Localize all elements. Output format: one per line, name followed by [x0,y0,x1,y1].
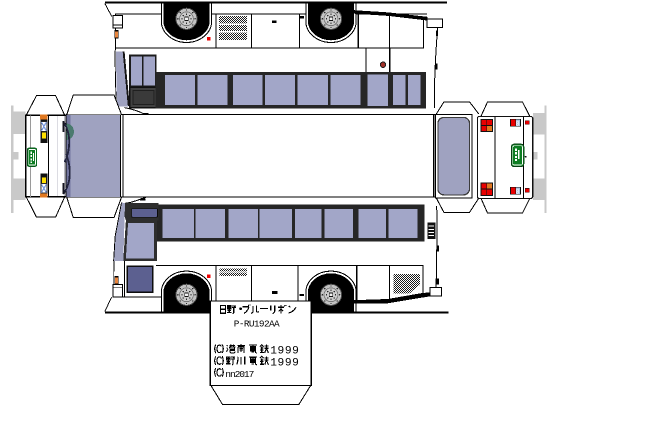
svg-text:1999: 1999 [270,346,299,358]
svg-text:1999: 1999 [270,357,299,369]
svg-text:P-RU192AA: P-RU192AA [234,319,280,330]
svg-text:nn2017: nn2017 [225,369,253,380]
